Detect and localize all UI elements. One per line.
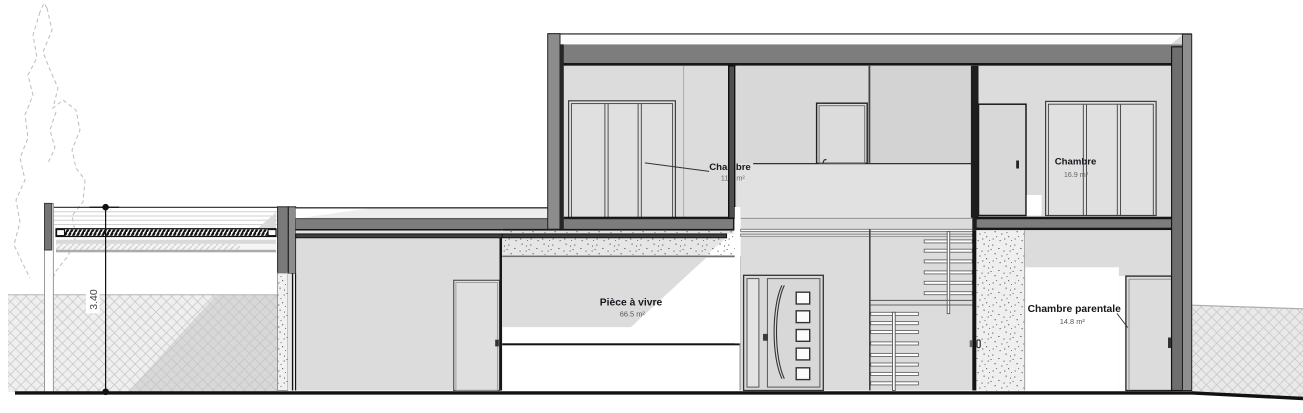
svg-text:3.40: 3.40 bbox=[88, 289, 100, 310]
svg-text:Pièce à vivre: Pièce à vivre bbox=[600, 298, 663, 309]
svg-text:16.9 m²: 16.9 m² bbox=[1064, 170, 1089, 179]
svg-text:Chambre parentale: Chambre parentale bbox=[1028, 304, 1122, 315]
svg-text:Chambre: Chambre bbox=[1055, 157, 1097, 168]
svg-text:14.8 m²: 14.8 m² bbox=[1060, 317, 1086, 326]
svg-text:66.5 m²: 66.5 m² bbox=[620, 310, 646, 319]
